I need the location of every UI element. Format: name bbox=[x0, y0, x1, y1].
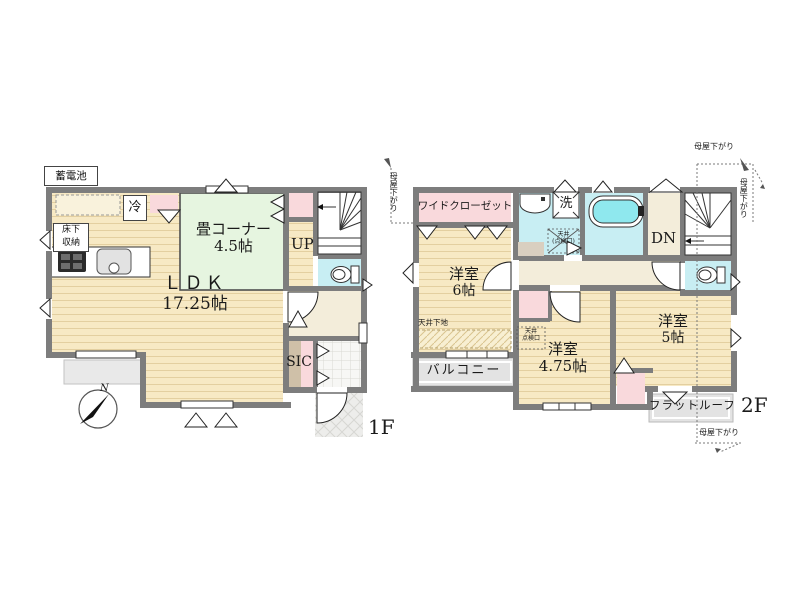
wide-closet-label: ワイドクローゼット bbox=[415, 200, 515, 212]
ceiling-hatch-wash-label: 天井(点検口) bbox=[547, 232, 580, 245]
washer-pan bbox=[518, 242, 544, 256]
moya-sagari-left-label: 母屋下がり bbox=[389, 172, 398, 232]
moya-sagari-bottom-label: 母屋下がり bbox=[699, 428, 739, 437]
room475-label: 洋室4.75帖 bbox=[517, 341, 609, 376]
bathtub-icon bbox=[589, 196, 644, 227]
kitchen-counter-dashed bbox=[56, 195, 120, 215]
closet-1f bbox=[289, 193, 313, 217]
moya-sagari-right-label: 母屋下がり bbox=[739, 178, 748, 238]
fridge-label: 冷 bbox=[123, 195, 147, 221]
sink-icon bbox=[97, 249, 131, 274]
toilet-icon-2f bbox=[697, 267, 725, 283]
floor1-label: 1F bbox=[368, 416, 395, 439]
sic-label: SIC bbox=[283, 354, 315, 370]
toilet-icon-1f bbox=[331, 266, 359, 283]
floor2-label: 2F bbox=[741, 394, 768, 417]
closet-475 bbox=[519, 291, 548, 318]
closet-5 bbox=[617, 373, 645, 404]
floor-storage-label: 床下収納 bbox=[53, 223, 89, 252]
moya-sagari-top-label: 母屋下がり bbox=[694, 142, 734, 151]
dn-label: DN bbox=[651, 230, 676, 247]
stove-icon bbox=[58, 251, 86, 272]
room5-label: 洋室5帖 bbox=[623, 313, 723, 346]
tatami-label: 畳コーナー4.5帖 bbox=[180, 221, 287, 256]
balcony-label: バルコニー bbox=[413, 364, 515, 379]
room6-label: 洋室6帖 bbox=[414, 266, 514, 299]
compass bbox=[79, 390, 117, 428]
up-label: UP bbox=[291, 236, 314, 253]
floorplan-canvas: 蓄電池 冷 床下収納 畳コーナー4.5帖 UP ＬＤＫ17.25帖 SIC N … bbox=[0, 0, 800, 600]
ldk-label: ＬＤＫ17.25帖 bbox=[135, 274, 255, 314]
deck bbox=[64, 360, 142, 384]
ceiling-base-label: 天井下地 bbox=[418, 319, 448, 328]
battery-label: 蓄電池 bbox=[44, 166, 98, 186]
washer-label: 洗 bbox=[553, 197, 579, 212]
washbasin-icon bbox=[520, 194, 550, 213]
flat-roof-label: フラットルーフ bbox=[649, 399, 733, 412]
ceiling-base-strip bbox=[417, 330, 511, 348]
compass-north-label: N bbox=[100, 383, 109, 395]
floorplan-drawing bbox=[0, 0, 800, 600]
